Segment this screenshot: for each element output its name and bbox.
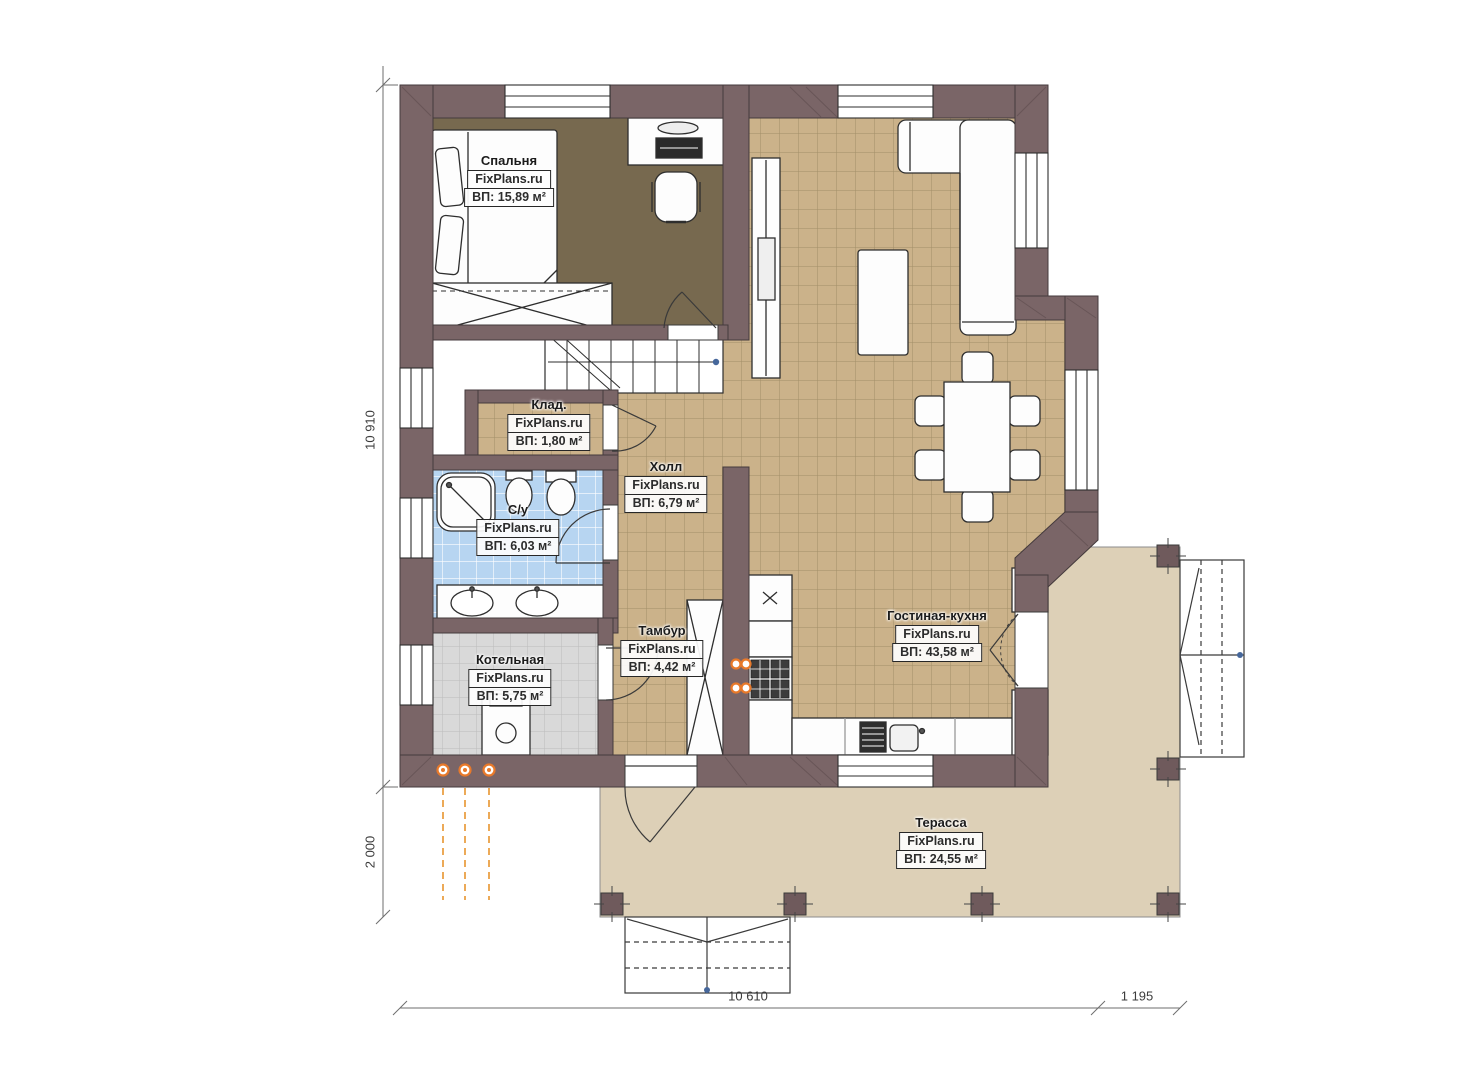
desk — [628, 118, 728, 165]
kitchen-counter — [792, 718, 1015, 755]
exterior-steps-bottom — [625, 917, 790, 993]
window-left-stairs — [400, 368, 433, 428]
bidet — [506, 471, 532, 512]
tv-console — [752, 158, 780, 378]
floor-plan-canvas — [0, 0, 1473, 1080]
bed — [432, 130, 557, 292]
office-chair — [652, 172, 700, 222]
kitchen-column — [748, 575, 792, 755]
boiler-unit — [482, 690, 530, 755]
dishwasher — [860, 722, 886, 752]
dimension-left-height: 10 910 — [363, 410, 378, 450]
dimension-left-terrace: 2 000 — [363, 836, 378, 869]
window-right-living — [1015, 153, 1048, 248]
window-top-living — [838, 85, 933, 118]
hall-closet — [687, 600, 723, 755]
shower — [437, 473, 495, 531]
window-bottom-kitchen — [838, 755, 933, 787]
floor-plan-page: Спальня FixPlans.ru ВП: 15,89 м² Клад. F… — [0, 0, 1473, 1080]
window-bump-dining — [1065, 370, 1098, 490]
exterior-steps-right — [1180, 560, 1244, 757]
dimension-bottom-steps: 1 195 — [1121, 989, 1154, 1004]
window-left-bathroom — [400, 498, 433, 558]
toilet — [546, 471, 576, 515]
coffee-table — [858, 250, 908, 355]
window-top-bedroom — [505, 85, 610, 118]
dimension-bottom-width: 10 610 — [728, 989, 768, 1004]
kitchen-sink — [890, 725, 918, 751]
vanity-double-sink — [437, 585, 607, 621]
window-left-boiler — [400, 645, 433, 705]
staircase — [545, 332, 723, 393]
